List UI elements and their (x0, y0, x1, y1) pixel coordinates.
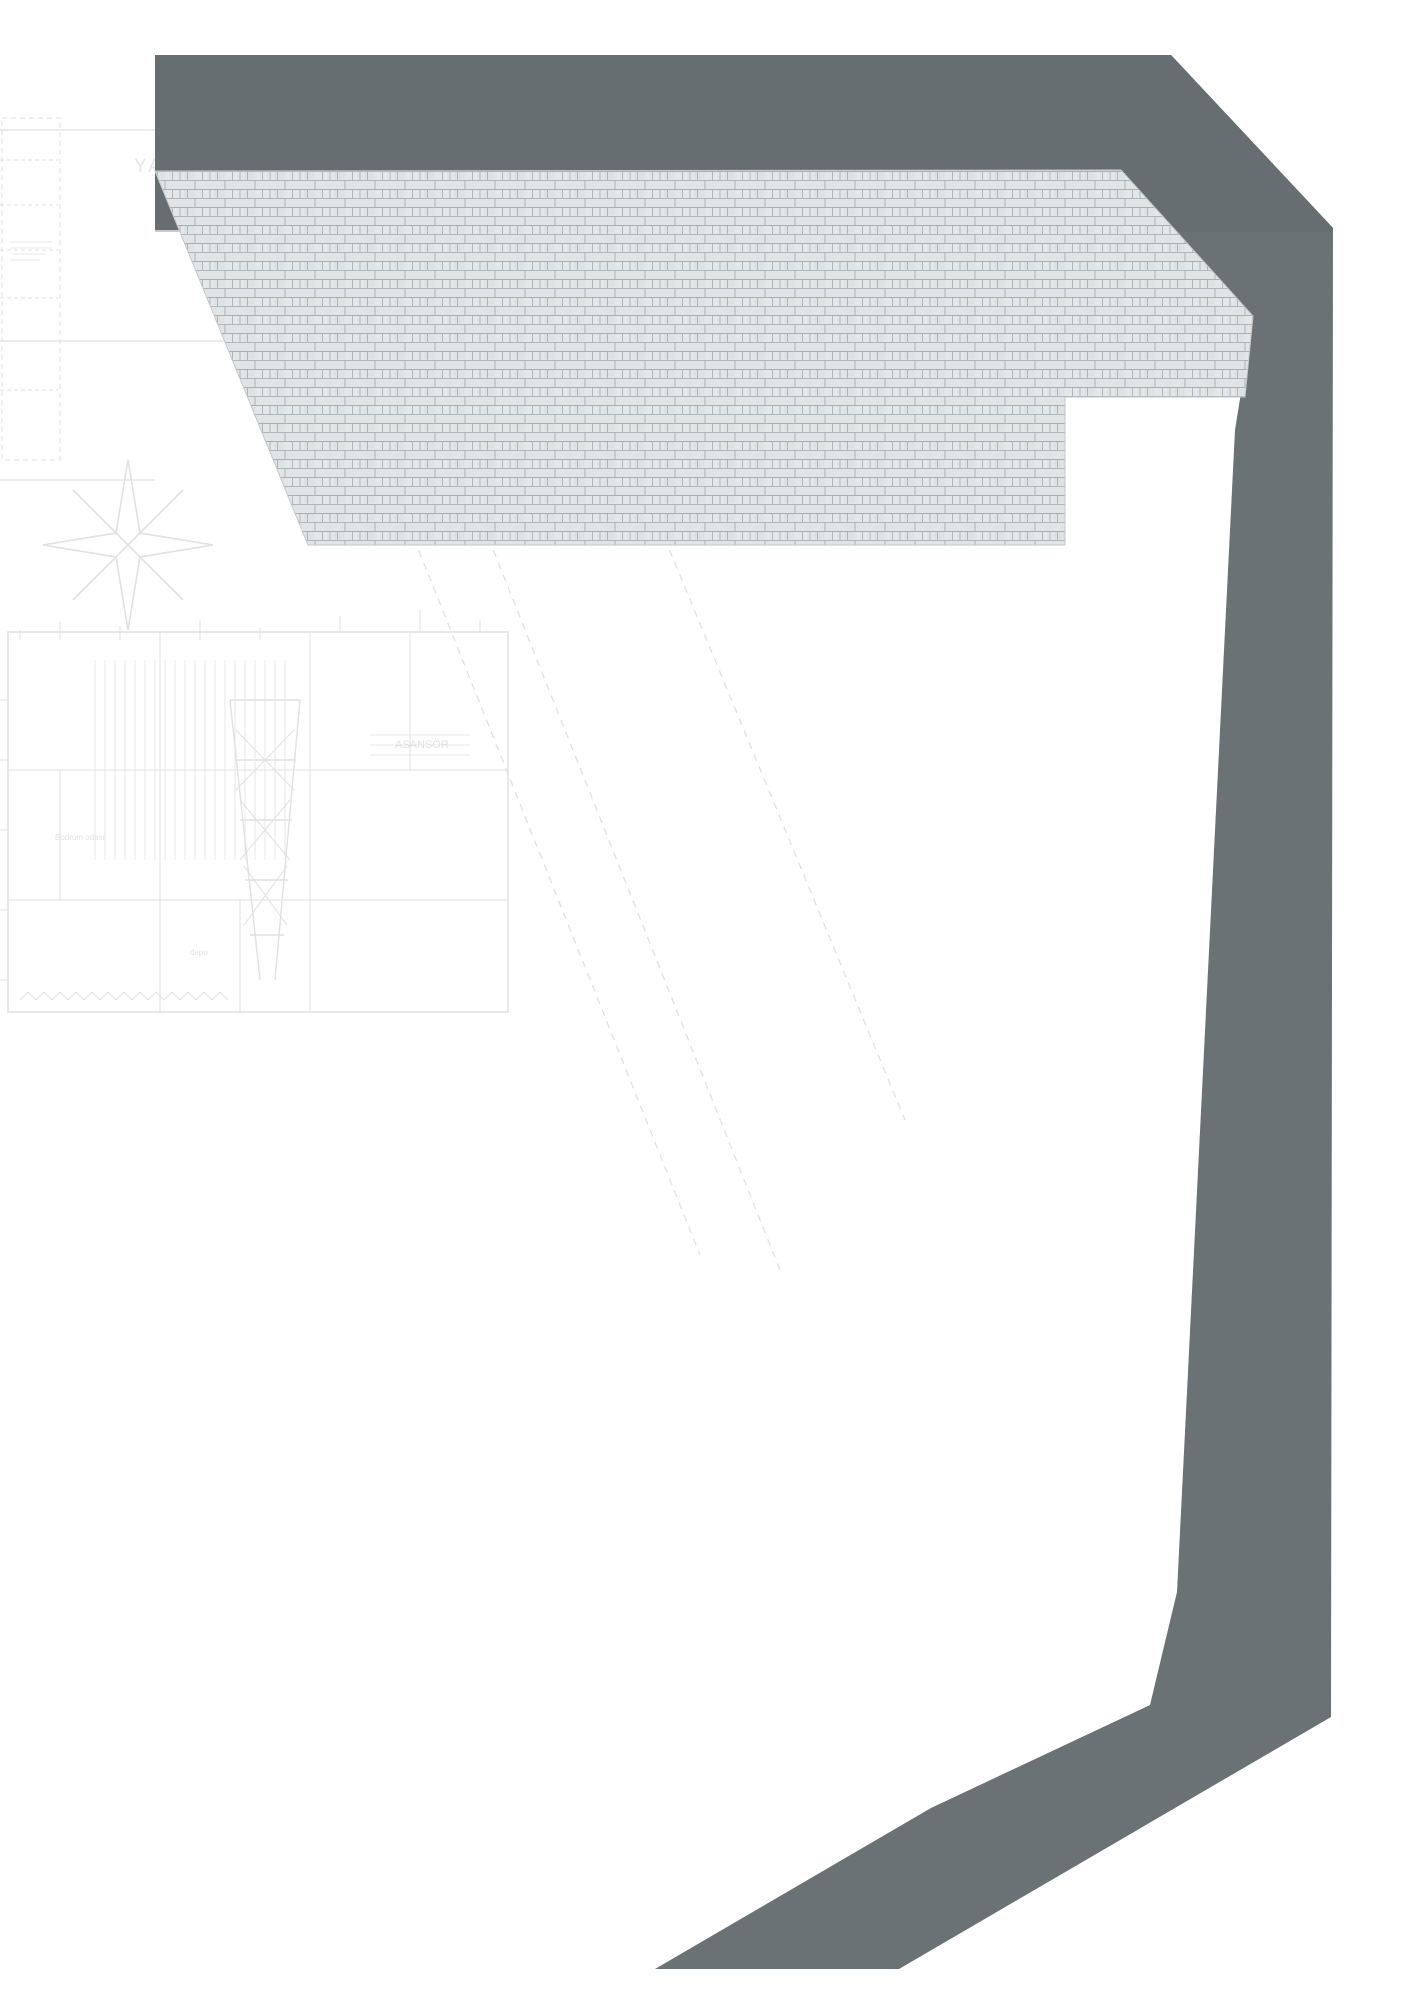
svg-text:Bodrum odası: Bodrum odası (55, 833, 105, 842)
svg-text:ASANSÖR: ASANSÖR (395, 739, 449, 751)
svg-text:depo: depo (190, 948, 208, 957)
